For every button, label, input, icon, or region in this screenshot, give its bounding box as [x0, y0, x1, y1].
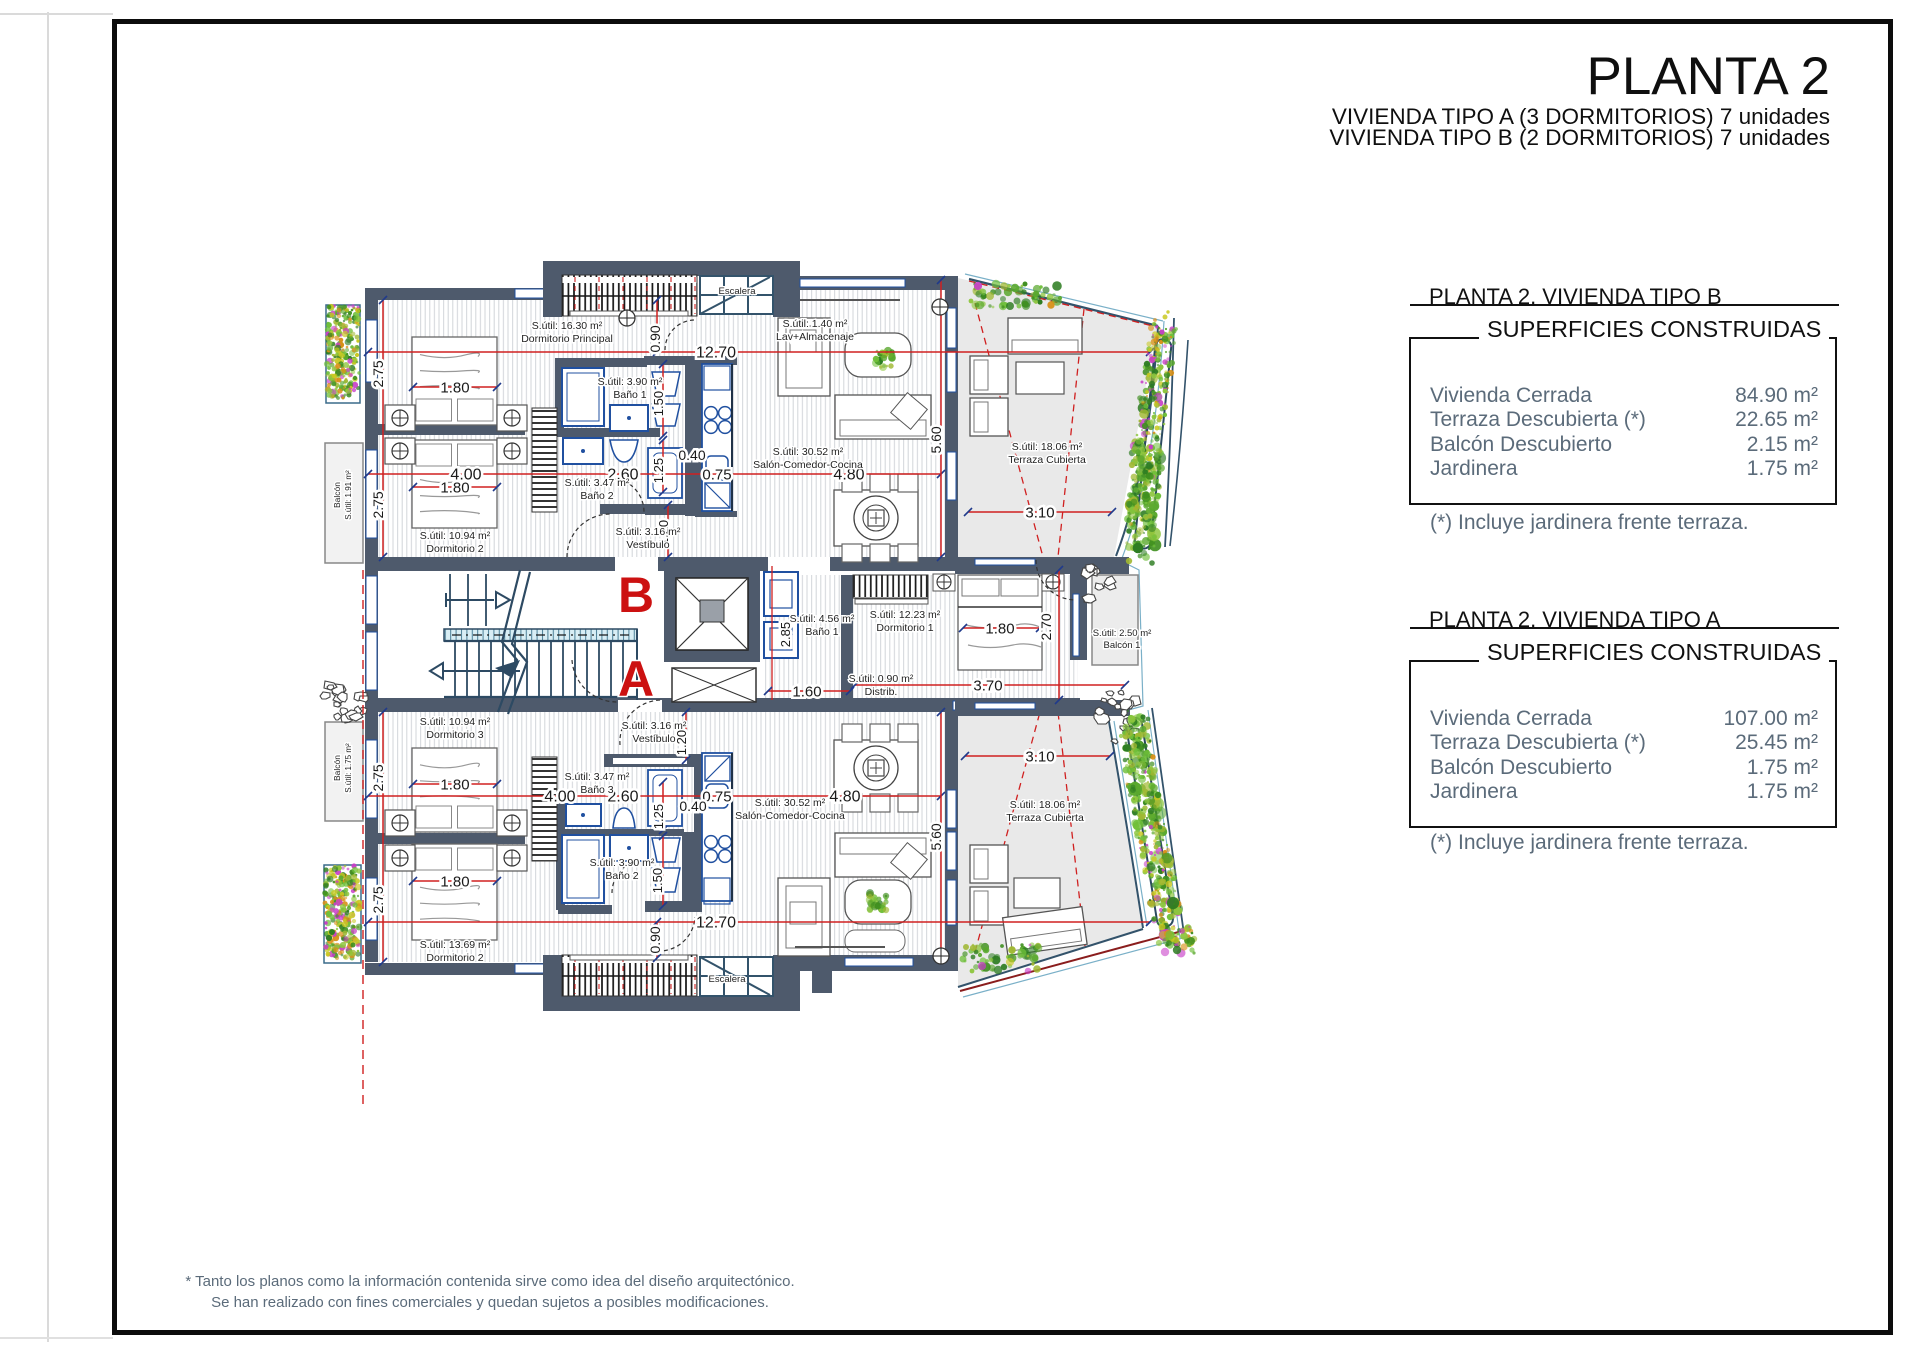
- svg-text:Salón-Comedor-Cocina: Salón-Comedor-Cocina: [735, 810, 845, 822]
- svg-text:Baño 1: Baño 1: [805, 626, 838, 638]
- svg-text:S.útil: 30.52 m²: S.útil: 30.52 m²: [755, 797, 826, 809]
- svg-text:2.75: 2.75: [370, 360, 386, 387]
- svg-text:S.útil: 18.06 m²: S.útil: 18.06 m²: [1012, 441, 1083, 453]
- svg-text:S.útil: 0.90 m²: S.útil: 0.90 m²: [849, 673, 914, 685]
- svg-text:0.75: 0.75: [702, 788, 731, 805]
- svg-text:Escalera: Escalera: [719, 286, 757, 297]
- svg-text:2.75: 2.75: [370, 764, 386, 791]
- svg-text:0.90: 0.90: [647, 325, 663, 352]
- svg-text:S.útil: 3.47 m²: S.útil: 3.47 m²: [565, 477, 630, 489]
- svg-text:12.70: 12.70: [696, 915, 736, 932]
- svg-text:Terraza Cubierta: Terraza Cubierta: [1008, 454, 1086, 466]
- svg-text:1.80: 1.80: [440, 379, 469, 396]
- svg-text:Vestíbulo: Vestíbulo: [632, 733, 675, 745]
- svg-text:1.80: 1.80: [440, 479, 469, 496]
- svg-text:1.25: 1.25: [651, 458, 666, 483]
- svg-text:1.20: 1.20: [674, 730, 689, 755]
- svg-text:5.60: 5.60: [928, 426, 944, 453]
- svg-text:Lav+Almacenaje: Lav+Almacenaje: [776, 331, 854, 343]
- svg-text:1.50: 1.50: [650, 868, 665, 893]
- svg-text:4.80: 4.80: [829, 789, 860, 806]
- svg-text:4.00: 4.00: [544, 789, 575, 806]
- svg-text:0.75: 0.75: [702, 466, 731, 483]
- svg-text:B: B: [618, 567, 654, 623]
- svg-text:S.útil: 3.16 m²: S.útil: 3.16 m²: [616, 526, 681, 538]
- svg-text:2.75: 2.75: [370, 886, 386, 913]
- svg-text:0.40: 0.40: [679, 798, 706, 814]
- svg-text:S.útil: 1.40 m²: S.útil: 1.40 m²: [783, 318, 848, 330]
- svg-text:0.40: 0.40: [678, 447, 705, 463]
- svg-text:S.útil: 10.94 m²: S.útil: 10.94 m²: [420, 716, 491, 728]
- svg-text:Baño 3: Baño 3: [580, 784, 613, 796]
- svg-text:Terraza Cubierta: Terraza Cubierta: [1006, 812, 1084, 824]
- svg-text:Dormitorio 2: Dormitorio 2: [426, 543, 483, 555]
- svg-text:S.útil: 3.47 m²: S.útil: 3.47 m²: [565, 771, 630, 783]
- svg-text:S.útil: 30.52 m²: S.útil: 30.52 m²: [773, 446, 844, 458]
- svg-text:Dormitorio 3: Dormitorio 3: [426, 729, 483, 741]
- svg-text:Baño 2: Baño 2: [580, 490, 613, 502]
- svg-text:0.90: 0.90: [647, 926, 663, 953]
- svg-text:Distrib.: Distrib.: [865, 686, 898, 698]
- svg-text:A: A: [618, 651, 654, 707]
- svg-text:S.útil: 16.30 m²: S.útil: 16.30 m²: [532, 320, 603, 332]
- svg-text:1.80: 1.80: [440, 776, 469, 793]
- svg-text:S.útil: 3.90 m²: S.útil: 3.90 m²: [590, 857, 655, 869]
- svg-text:Baño 1: Baño 1: [613, 389, 646, 401]
- svg-text:S.útil: 1.75 m²: S.útil: 1.75 m²: [344, 743, 353, 793]
- svg-text:Balcón: Balcón: [332, 755, 342, 781]
- svg-text:3.70: 3.70: [973, 677, 1002, 694]
- svg-text:Balcón: Balcón: [332, 482, 342, 508]
- svg-text:12.70: 12.70: [696, 345, 736, 362]
- svg-text:S.útil: 2.50 m²: S.útil: 2.50 m²: [1093, 628, 1152, 639]
- svg-text:1.80: 1.80: [985, 620, 1014, 637]
- svg-text:3.10: 3.10: [1025, 504, 1054, 521]
- svg-text:S.útil: 3.90 m²: S.útil: 3.90 m²: [598, 376, 663, 388]
- svg-text:S.útil: 18.06 m²: S.útil: 18.06 m²: [1010, 799, 1081, 811]
- svg-text:Salón-Comedor-Cocina: Salón-Comedor-Cocina: [753, 459, 863, 471]
- svg-text:2.75: 2.75: [370, 491, 386, 518]
- svg-text:Dormitorio Principal: Dormitorio Principal: [521, 333, 613, 345]
- svg-text:1.50: 1.50: [651, 391, 666, 416]
- svg-text:Vestíbulo: Vestíbulo: [626, 539, 669, 551]
- svg-text:Dormitorio 2: Dormitorio 2: [426, 952, 483, 964]
- svg-text:5.60: 5.60: [928, 823, 944, 850]
- svg-text:Escalera: Escalera: [709, 974, 747, 985]
- svg-text:1.60: 1.60: [792, 683, 821, 700]
- svg-text:2.70: 2.70: [1038, 613, 1054, 640]
- svg-text:S.útil: 13.69 m²: S.útil: 13.69 m²: [420, 939, 491, 951]
- svg-text:S.útil: 3.16 m²: S.útil: 3.16 m²: [622, 720, 687, 732]
- svg-text:S.útil: 1.91 m²: S.útil: 1.91 m²: [344, 470, 353, 520]
- svg-text:Dormitorio 1: Dormitorio 1: [876, 622, 933, 634]
- svg-text:S.útil: 12.23 m²: S.útil: 12.23 m²: [870, 609, 941, 621]
- svg-text:Balcón 1: Balcón 1: [1104, 640, 1141, 651]
- svg-text:Baño 2: Baño 2: [605, 870, 638, 882]
- svg-text:2.85: 2.85: [778, 622, 793, 647]
- svg-text:S.útil: 10.94 m²: S.útil: 10.94 m²: [420, 530, 491, 542]
- svg-text:1.80: 1.80: [440, 873, 469, 890]
- svg-text:3.10: 3.10: [1025, 748, 1054, 765]
- svg-text:S.útil: 4.56 m²: S.útil: 4.56 m²: [790, 613, 855, 625]
- svg-text:1.25: 1.25: [651, 804, 666, 829]
